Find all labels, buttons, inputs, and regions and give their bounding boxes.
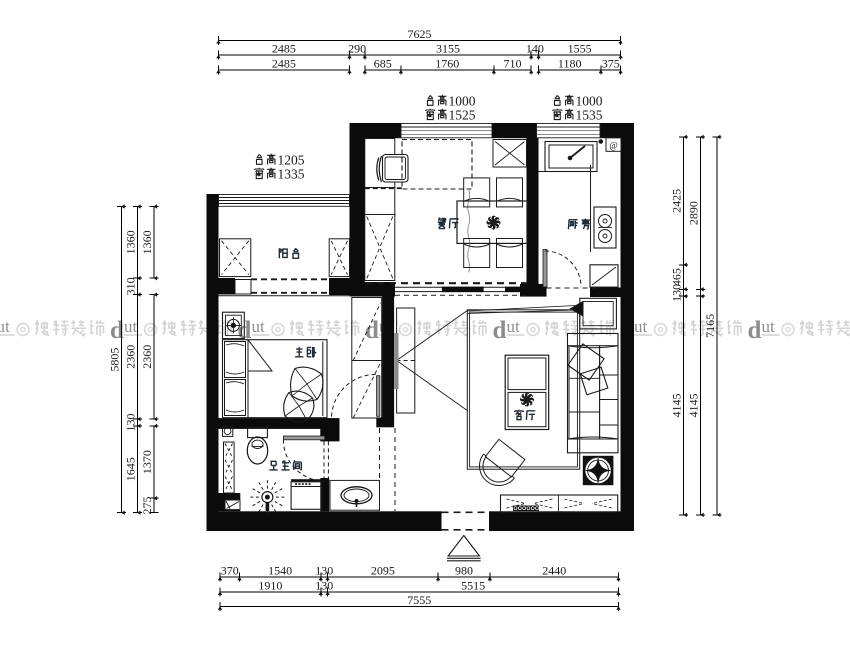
svg-text:1555: 1555 bbox=[568, 42, 592, 56]
svg-text:5805: 5805 bbox=[108, 348, 122, 372]
svg-text:275: 275 bbox=[140, 497, 154, 515]
svg-text:ut: ut bbox=[252, 317, 266, 336]
svg-text:2095: 2095 bbox=[371, 564, 395, 578]
svg-text:2890: 2890 bbox=[687, 201, 701, 225]
svg-text:4145: 4145 bbox=[670, 394, 684, 418]
svg-text:140: 140 bbox=[526, 42, 544, 56]
svg-text:ut: ut bbox=[507, 317, 521, 336]
svg-text:7165: 7165 bbox=[703, 314, 717, 338]
svg-text:d: d bbox=[748, 317, 762, 344]
svg-text:7625: 7625 bbox=[408, 27, 432, 41]
svg-text:980: 980 bbox=[455, 564, 473, 578]
svg-text:5: 5 bbox=[298, 153, 305, 168]
svg-text:5: 5 bbox=[469, 108, 476, 123]
svg-text:310: 310 bbox=[123, 277, 137, 295]
svg-text:2360: 2360 bbox=[123, 345, 137, 369]
svg-text:1180: 1180 bbox=[558, 57, 582, 71]
svg-text:1760: 1760 bbox=[435, 57, 459, 71]
svg-text:130: 130 bbox=[315, 578, 333, 592]
svg-text:2485: 2485 bbox=[272, 42, 296, 56]
svg-text:ut: ut bbox=[634, 317, 648, 336]
svg-text:290: 290 bbox=[348, 42, 366, 56]
svg-text:d: d bbox=[493, 317, 507, 344]
svg-text:ut: ut bbox=[762, 317, 776, 336]
svg-text:7555: 7555 bbox=[407, 593, 431, 607]
svg-text:2440: 2440 bbox=[542, 564, 566, 578]
svg-text:710: 710 bbox=[504, 57, 522, 71]
svg-text:375: 375 bbox=[602, 57, 620, 71]
svg-text:0: 0 bbox=[469, 94, 476, 109]
svg-text:ut: ut bbox=[0, 317, 10, 336]
svg-text:1540: 1540 bbox=[268, 564, 292, 578]
svg-text:4145: 4145 bbox=[687, 394, 701, 418]
svg-text:2360: 2360 bbox=[140, 345, 154, 369]
svg-text:2: 2 bbox=[462, 108, 469, 123]
svg-text:1360: 1360 bbox=[123, 230, 137, 254]
svg-text:130: 130 bbox=[315, 564, 333, 578]
svg-text:465: 465 bbox=[670, 268, 684, 286]
svg-text:370: 370 bbox=[221, 564, 239, 578]
svg-text:2: 2 bbox=[284, 153, 291, 168]
svg-text:685: 685 bbox=[374, 57, 392, 71]
svg-text:3155: 3155 bbox=[436, 42, 460, 56]
svg-text:5: 5 bbox=[298, 167, 305, 182]
svg-text:ut: ut bbox=[124, 317, 138, 336]
svg-text:0: 0 bbox=[596, 94, 603, 109]
svg-text:1360: 1360 bbox=[140, 230, 154, 254]
svg-text:1910: 1910 bbox=[258, 578, 282, 592]
svg-text:1645: 1645 bbox=[123, 457, 137, 481]
svg-text:1370: 1370 bbox=[140, 450, 154, 474]
svg-text:5: 5 bbox=[596, 108, 603, 123]
svg-text:2425: 2425 bbox=[670, 189, 684, 213]
svg-text:2485: 2485 bbox=[272, 57, 296, 71]
svg-text:130: 130 bbox=[123, 414, 137, 432]
svg-text:5515: 5515 bbox=[461, 578, 485, 592]
svg-text:@: @ bbox=[609, 141, 617, 151]
svg-text:130: 130 bbox=[670, 284, 684, 302]
